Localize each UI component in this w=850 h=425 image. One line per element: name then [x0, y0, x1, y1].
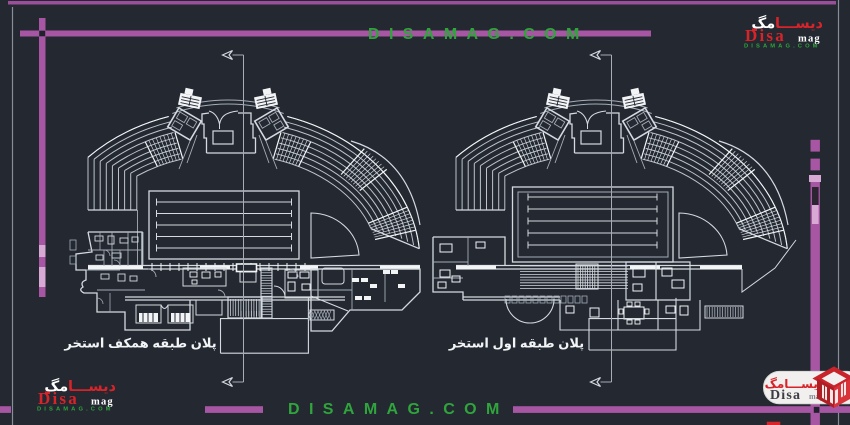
- svg-text:DISAMAG.COM: DISAMAG.COM: [744, 44, 821, 50]
- svg-text:DISAMAG.COM: DISAMAG.COM: [368, 26, 589, 43]
- svg-text:DISAMAG.COM: DISAMAG.COM: [37, 407, 114, 413]
- svg-text:DISAMAG.COM: DISAMAG.COM: [288, 401, 509, 418]
- svg-text:پلان طبقه اول استخر: پلان طبقه اول استخر: [448, 336, 584, 351]
- svg-text:پلان طبقه همکف استخر: پلان طبقه همکف استخر: [63, 336, 216, 351]
- svg-text:Disa: Disa: [770, 388, 801, 403]
- svg-text:Disa: Disa: [745, 26, 786, 45]
- svg-text:Disa: Disa: [38, 389, 79, 408]
